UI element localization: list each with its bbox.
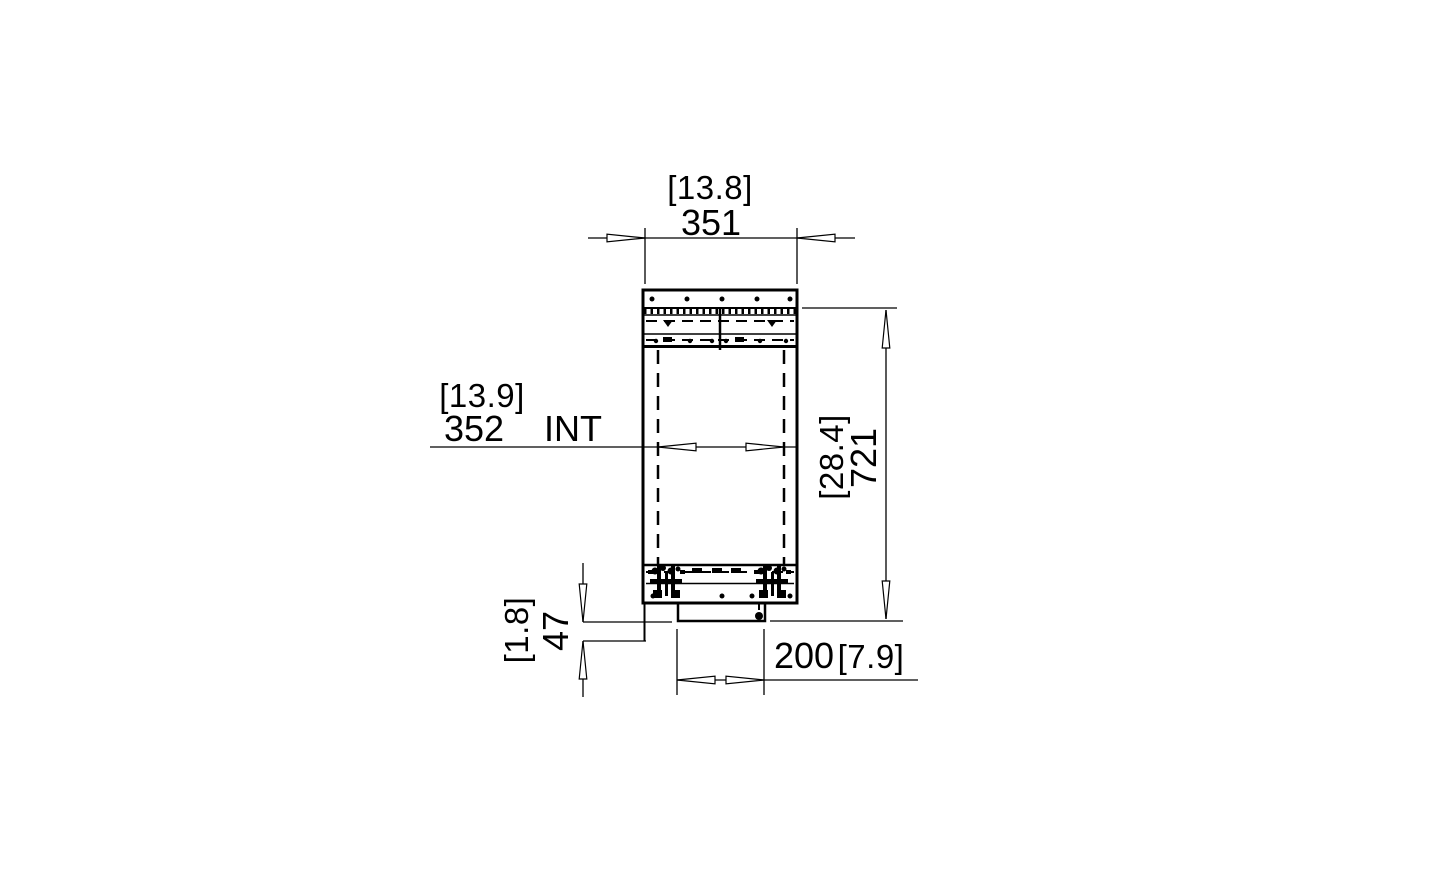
dimension-arrowhead — [607, 234, 645, 242]
dimension-arrowhead — [658, 443, 696, 451]
connection-box-outline — [678, 603, 765, 621]
dimension-internal-width: [13.9] 352 INT — [430, 377, 797, 451]
fixing-dot — [724, 339, 728, 343]
fixing-dot — [758, 339, 762, 343]
dimension-base-offset: [1.8] 47 — [498, 563, 672, 697]
interior-cavity — [658, 350, 784, 564]
dimension-arrowhead — [677, 676, 715, 684]
base-band — [644, 565, 796, 599]
dimension-arrowhead — [579, 584, 587, 622]
fixing-dot — [688, 339, 692, 343]
gas-inlet-dot — [755, 612, 763, 620]
screw-dot-icon — [650, 297, 655, 302]
internal-width-suffix-label: INT — [544, 408, 602, 449]
firebox-body — [643, 290, 797, 641]
fixing-dot — [784, 339, 788, 343]
triangle-marker-icon — [663, 320, 673, 327]
top-width-metric-label: 351 — [681, 202, 741, 243]
base-dot — [788, 594, 793, 599]
triangle-marker-icon — [767, 320, 777, 327]
base-tab — [692, 568, 702, 573]
height-metric-label: 721 — [843, 428, 884, 488]
technical-drawing-svg: [13.8] 351 [13.9] 352 INT [28.4] 721 [1.… — [0, 0, 1445, 893]
base-offset-metric-label: 47 — [535, 611, 576, 651]
dimension-arrowhead — [726, 676, 764, 684]
base-dot — [720, 594, 725, 599]
dimension-arrowhead — [579, 641, 587, 679]
internal-width-metric-label: 352 — [444, 408, 504, 449]
drawing-page: [13.8] 351 [13.9] 352 INT [28.4] 721 [1.… — [0, 0, 1445, 893]
screw-dot-icon — [685, 297, 690, 302]
bottom-connection-box — [678, 603, 765, 621]
base-tab — [712, 568, 722, 573]
base-offset-imperial-label: [1.8] — [498, 597, 535, 664]
dimension-top-width: [13.8] 351 — [588, 169, 855, 284]
base-tab — [731, 568, 741, 573]
dimension-bottom-width: 200 [7.9] — [677, 629, 918, 695]
leveling-bracket-left — [648, 565, 685, 598]
fixing-dot — [654, 339, 658, 343]
fixing-tab — [663, 337, 672, 342]
fixing-tab — [735, 337, 744, 342]
dimension-arrowhead — [797, 234, 835, 242]
bottom-width-metric-label: 200 — [774, 635, 834, 676]
fixing-dot — [710, 339, 714, 343]
base-dot — [750, 594, 755, 599]
screw-dot-icon — [755, 297, 760, 302]
screw-dot-icon — [720, 297, 725, 302]
bottom-width-imperial-label: [7.9] — [838, 638, 905, 675]
dimension-arrowhead — [882, 581, 890, 619]
top-flange — [644, 297, 796, 309]
dimension-arrowhead — [882, 310, 890, 348]
leveling-bracket-right — [754, 565, 791, 598]
screw-dot-icon — [788, 297, 793, 302]
top-width-imperial-label: [13.8] — [667, 169, 753, 206]
dimension-arrowhead — [746, 443, 784, 451]
dimension-height: [28.4] 721 — [770, 308, 903, 621]
